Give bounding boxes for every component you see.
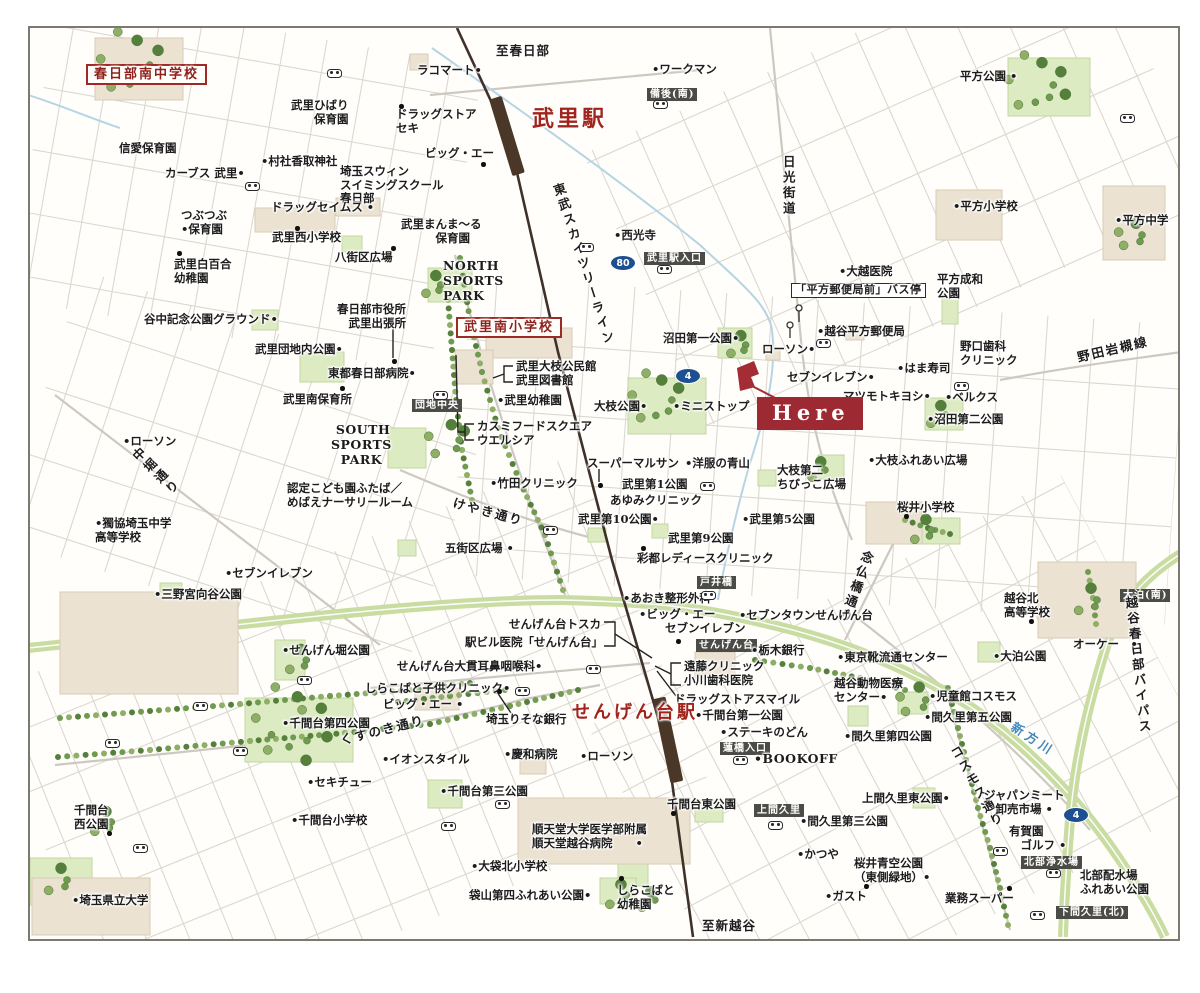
map-label: 下間久里(北) bbox=[1056, 906, 1128, 919]
takesato-station-label: 武里駅 bbox=[532, 107, 607, 133]
map-label: •千間台第三公園 bbox=[440, 785, 528, 799]
map-label: ジャパンミート 卸売市場 • bbox=[984, 789, 1065, 816]
here-marker: Here bbox=[757, 397, 863, 430]
bus-stop-icon bbox=[297, 676, 312, 685]
poi-dot bbox=[497, 689, 502, 694]
map-label: しらこばと 幼稚園 bbox=[617, 884, 675, 911]
map-label: カスミフードスクエア ウエルシア bbox=[477, 420, 592, 447]
map-canvas: 春日部南中学校武里南小学校「平方郵便局前」バス停備後(南)武里駅入口団地中央戸井… bbox=[28, 26, 1180, 941]
map-label: ビッグ・エー bbox=[425, 147, 494, 161]
map-label: セブンイレブン• bbox=[787, 371, 875, 385]
map-label: •武里第5公園 bbox=[742, 513, 815, 527]
map-label: 武里まんま〜る 保育園 bbox=[401, 218, 482, 245]
school-box-takesato-minami: 武里南小学校 bbox=[456, 317, 562, 338]
poi-dot bbox=[1007, 886, 1012, 891]
map-label: •あおき整形外科 bbox=[623, 592, 711, 606]
direction-to-kasukabe: 至春日部 bbox=[496, 44, 550, 59]
map-label: せんげん台トスカ bbox=[509, 618, 601, 632]
north-sports-park-label: NORTH SPORTS PARK bbox=[443, 259, 504, 303]
bus-stop-icon bbox=[495, 800, 510, 809]
map-label: •セブンタウンせんげん台 bbox=[739, 609, 873, 623]
poi-dot bbox=[399, 104, 404, 109]
map-label: •ガスト bbox=[825, 890, 867, 904]
map-label: •千間台第四公園 bbox=[282, 717, 370, 731]
map-label: ドラッグセイムス • bbox=[271, 201, 374, 215]
poi-dot bbox=[392, 359, 397, 364]
poi-dot bbox=[619, 876, 624, 881]
bus-stop-icon bbox=[1120, 114, 1135, 123]
map-label: 東都春日部病院• bbox=[328, 367, 416, 381]
map-label: 春日部市役所 武里出張所 bbox=[337, 303, 406, 330]
map-label: •せんげん堀公園 bbox=[282, 644, 370, 658]
map-label: 千間台東公園 bbox=[667, 798, 736, 812]
map-label: 駅ビル医院「せんげん台」 bbox=[465, 636, 603, 650]
map-label: 戸井橋 bbox=[697, 576, 736, 589]
map-label: 桜井青空公園 （東側緑地）• bbox=[854, 857, 930, 884]
map-label: •慶和病院 bbox=[504, 748, 557, 762]
map-label: 上間久里 bbox=[754, 804, 804, 817]
poi-dot bbox=[641, 546, 646, 551]
map-label: •沼田第二公園 bbox=[927, 413, 1003, 427]
map-label: 武里南保育所 bbox=[283, 393, 352, 407]
map-label: ラコマート• bbox=[417, 64, 482, 78]
map-label: 千間台 西公園 bbox=[74, 804, 109, 831]
busstop-box-hirakata-postoffice: 「平方郵便局前」バス停 bbox=[791, 283, 926, 298]
bus-stop-icon bbox=[993, 847, 1008, 856]
map-label: 八街区広場 bbox=[335, 251, 393, 265]
bus-stop-icon bbox=[657, 265, 672, 274]
map-label: 認定こども園ふたば／ めばえナーサリールーム bbox=[287, 482, 413, 509]
bus-stop-icon bbox=[579, 243, 594, 252]
bus-stop-icon bbox=[193, 702, 208, 711]
map-label: 北部浄水場 bbox=[1021, 856, 1082, 869]
poi-dot bbox=[107, 831, 112, 836]
direction-to-shinkoshigaya: 至新越谷 bbox=[702, 919, 756, 934]
route-shield-80: 80 bbox=[610, 255, 636, 271]
map-label: 武里西小学校 bbox=[272, 231, 341, 245]
map-label: 平方公園 • bbox=[960, 70, 1017, 84]
poi-dot bbox=[391, 246, 396, 251]
bus-stop-icon bbox=[653, 100, 668, 109]
map-label: •武里幼稚園 bbox=[497, 394, 562, 408]
map-label: 備後(南) bbox=[647, 88, 697, 101]
poi-dot bbox=[864, 884, 869, 889]
map-label: •洋服の青山 bbox=[685, 457, 750, 471]
poi-dot bbox=[340, 386, 345, 391]
school-box-kasukabe-minami: 春日部南中学校 bbox=[86, 64, 207, 85]
bus-stop-icon bbox=[1046, 869, 1061, 878]
map-label: •ベルクス bbox=[945, 391, 998, 405]
map-label: 武里駅入口 bbox=[644, 252, 705, 265]
map-label: 越谷北 高等学校 bbox=[1004, 592, 1050, 619]
map-label: •ミニストップ bbox=[673, 400, 749, 414]
route-shield-4: 4 bbox=[1063, 807, 1089, 823]
map-label: 五街区広場 • bbox=[445, 542, 514, 556]
poi-dot bbox=[904, 514, 909, 519]
map-label: 野口歯科 クリニック bbox=[960, 340, 1018, 367]
map-label: •大泊公園 bbox=[993, 650, 1046, 664]
bus-stop-icon bbox=[433, 391, 448, 400]
map-label: せんげん台 bbox=[696, 639, 757, 652]
map-label: •ビッグ・エー bbox=[639, 608, 715, 622]
map-label: •セブンイレブン bbox=[225, 567, 313, 581]
bus-stop-icon bbox=[105, 739, 120, 748]
map-label: 武里第1公園 bbox=[622, 478, 688, 492]
map-label: 信愛保育園 bbox=[119, 142, 177, 156]
map-label: 北部配水場 ふれあい公園 bbox=[1080, 869, 1149, 896]
map-label: •はま寿司 bbox=[897, 362, 950, 376]
map-label: •平方中学 bbox=[1115, 214, 1168, 228]
bookoff-label: •BOOKOFF bbox=[754, 752, 838, 767]
map-label: 武里白百合 幼稚園 bbox=[174, 258, 232, 285]
bus-stop-icon bbox=[701, 591, 716, 600]
route-shield-4: 4 bbox=[675, 368, 701, 384]
poi-dot bbox=[1029, 619, 1034, 624]
sengendai-station-label: せんげん台駅 bbox=[572, 702, 698, 723]
map-label: 桜井小学校 bbox=[897, 501, 955, 515]
map-label: •ワークマン bbox=[652, 63, 717, 77]
bus-stop-icon bbox=[1030, 911, 1045, 920]
bus-stop-icon bbox=[133, 844, 148, 853]
map-label: 武里大枝公民館 武里図書館 bbox=[516, 360, 597, 387]
bus-stop-icon bbox=[816, 339, 831, 348]
map-label: •大枝ふれあい広場 bbox=[868, 454, 967, 468]
map-label: •間久里第三公園 bbox=[800, 815, 888, 829]
map-label: せんげん台大貫耳鼻咽喉科• bbox=[397, 660, 542, 674]
map-label: 大枝第二 ちびっこ広場 bbox=[777, 464, 846, 491]
map-label: 業務スーパー bbox=[945, 892, 1014, 906]
map-label: •児童館コスモス bbox=[929, 690, 1017, 704]
map-label: •埼玉県立大学 bbox=[72, 894, 148, 908]
poi-dot bbox=[177, 251, 182, 256]
map-label: 武里団地内公園• bbox=[255, 343, 343, 357]
map-label: •大越医院 bbox=[839, 265, 892, 279]
map-label: 越谷動物医療 センター• bbox=[834, 677, 903, 704]
map-label: •東京靴流通センター bbox=[837, 651, 948, 665]
map-label: •村社香取神社 bbox=[261, 155, 337, 169]
map-label: 武里ひばり 保育園 bbox=[291, 99, 349, 126]
poi-dot bbox=[481, 162, 486, 167]
map-label: ドラッグストア セキ bbox=[396, 108, 477, 135]
map-label: •越谷平方郵便局 bbox=[817, 325, 905, 339]
map-label: •間久里第五公園 bbox=[924, 711, 1012, 725]
map-label: 遠藤クリニック 小川歯科医院 bbox=[684, 660, 765, 687]
bus-stop-icon bbox=[700, 482, 715, 491]
map-label: ビッグ・エー • bbox=[383, 698, 463, 712]
bus-stop-icon bbox=[441, 822, 456, 831]
map-label: •ローソン bbox=[580, 750, 633, 764]
poi-dot bbox=[598, 483, 603, 488]
map-label: スーパーマルサン bbox=[587, 457, 679, 471]
poi-dot bbox=[295, 226, 300, 231]
bus-stop-icon bbox=[954, 382, 969, 391]
map-label: つぶつぶ •保育園 bbox=[181, 209, 227, 236]
map-label: 彩都レディースクリニック bbox=[637, 552, 774, 566]
bus-stop-icon bbox=[543, 526, 558, 535]
map-label: •三野宮向谷公園 bbox=[154, 588, 242, 602]
map-label: •ローソン bbox=[123, 435, 176, 449]
map-label: 袋山第四ふれあい公園• bbox=[469, 889, 591, 903]
map-label: 谷中記念公園グラウンド• bbox=[144, 313, 278, 327]
map-label: •獨協埼玉中学 高等学校 bbox=[95, 517, 171, 544]
map-label: •平方小学校 bbox=[953, 200, 1018, 214]
south-sports-park-label: SOUTH SPORTS PARK bbox=[331, 423, 392, 467]
bus-stop-icon bbox=[515, 687, 530, 696]
map-label: 武里第10公園• bbox=[578, 513, 659, 527]
area-map: 春日部南中学校武里南小学校「平方郵便局前」バス停備後(南)武里駅入口団地中央戸井… bbox=[28, 26, 1180, 941]
map-label: •西光寺 bbox=[614, 229, 656, 243]
bus-stop-icon bbox=[586, 665, 601, 674]
bus-stop-icon bbox=[233, 747, 248, 756]
road-nikko-kaido: 日光街道 bbox=[780, 155, 795, 217]
map-label: 平方成和 公園 bbox=[937, 273, 983, 300]
map-label: •セキチュー bbox=[307, 776, 372, 790]
map-label: •間久里第四公園 bbox=[844, 730, 932, 744]
map-label: 埼玉りそな銀行 bbox=[486, 713, 567, 727]
map-label: 武里第9公園 bbox=[668, 532, 734, 546]
map-label: ローソン• bbox=[762, 343, 815, 357]
map-label: 上間久里東公園• bbox=[862, 792, 950, 806]
map-label: •かつや bbox=[797, 848, 839, 862]
bus-stop-icon bbox=[327, 69, 342, 78]
map-label: カーブス 武里• bbox=[165, 167, 245, 181]
map-label: •大袋北小学校 bbox=[471, 860, 547, 874]
map-label: •千間台第一公園 bbox=[695, 709, 783, 723]
map-label: •ステーキのどん bbox=[720, 726, 808, 740]
bus-stop-icon bbox=[245, 182, 260, 191]
map-label: 団地中央 bbox=[412, 399, 462, 412]
map-page: 春日部南中学校武里南小学校「平方郵便局前」バス停備後(南)武里駅入口団地中央戸井… bbox=[0, 0, 1200, 993]
map-label: オーケー • bbox=[1073, 638, 1138, 652]
map-label: セブンイレブン bbox=[665, 622, 746, 636]
map-label: しらこばと子供クリニック• bbox=[365, 682, 510, 696]
map-label: •イオンスタイル bbox=[382, 753, 470, 767]
map-label: 大枝公園• bbox=[594, 400, 647, 414]
map-label: あゆみクリニック bbox=[610, 494, 702, 508]
map-label: •竹田クリニック bbox=[490, 477, 578, 491]
bus-stop-icon bbox=[768, 821, 783, 830]
map-label: 沼田第一公園• bbox=[663, 332, 739, 346]
bus-stop-icon bbox=[733, 756, 748, 765]
poi-dot bbox=[676, 639, 681, 644]
map-label: •栃木銀行 bbox=[751, 644, 804, 658]
map-label: •千間台小学校 bbox=[291, 814, 367, 828]
map-label: 順天堂大学医学部附属 順天堂越谷病院 • bbox=[532, 823, 647, 850]
map-label: 有賀園 ゴルフ • bbox=[1009, 825, 1066, 852]
poi-dot bbox=[671, 811, 676, 816]
